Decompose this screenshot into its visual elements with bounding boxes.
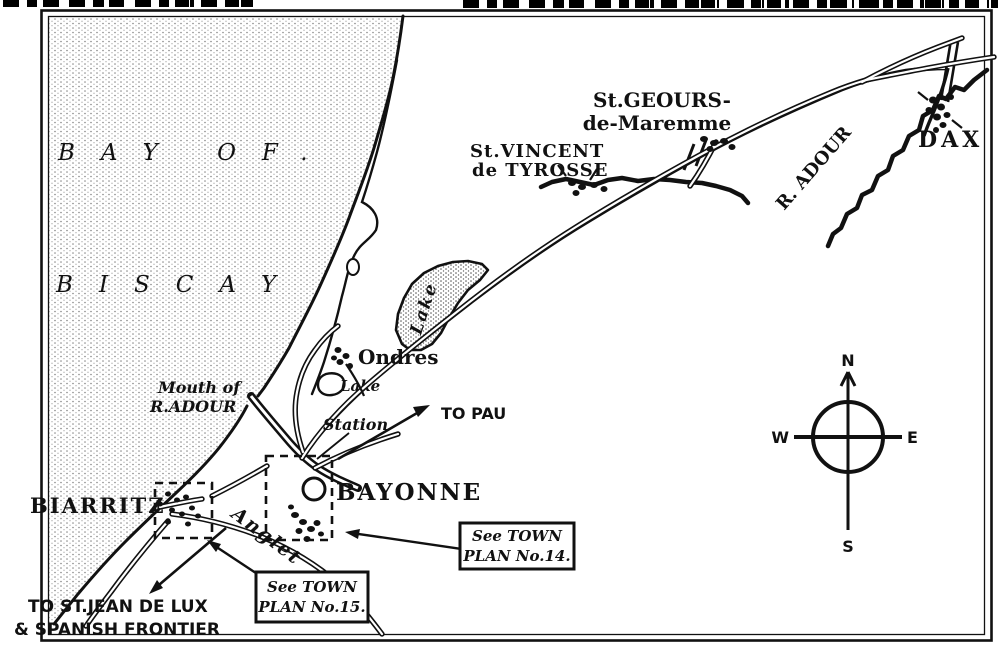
plan14-line1: See TOWN	[472, 527, 563, 545]
map-page: BAY OF. BISCAY R. ADOUR Mouth of R.ADOUR…	[0, 0, 1000, 659]
label-dax: DAX	[918, 127, 983, 153]
label-st-geours-line1: St.GEOURS-	[593, 88, 731, 112]
leader-plan15	[207, 540, 262, 577]
plan14-line2: PLAN No.14.	[462, 547, 570, 565]
compass-s: S	[842, 537, 854, 556]
plan15-line1: See TOWN	[267, 578, 358, 596]
label-st-geours-line2: de-Maremme	[583, 111, 731, 135]
river-adour-label: R. ADOUR	[772, 122, 856, 215]
small-pond-coast	[347, 259, 359, 275]
river-adour-dax: R. ADOUR	[772, 70, 987, 246]
plan-box-15: See TOWN PLAN No.15.	[256, 572, 368, 622]
label-biarritz: BIARRITZ	[30, 493, 166, 518]
label-bayonne: BAYONNE	[336, 479, 482, 506]
label-st-vincent-line1: St.VINCENT	[470, 141, 604, 162]
mouth-label-line1: Mouth of	[157, 378, 243, 397]
sea-label-line1: BAY OF.	[57, 140, 334, 166]
plan-box-14: See TOWN PLAN No.14.	[460, 523, 574, 569]
leader-plan14	[345, 529, 462, 549]
label-st-vincent-line2: de TYROSSE	[472, 160, 609, 181]
mouth-label-line2: R.ADOUR	[149, 397, 236, 416]
sea-label-line2: BISCAY	[55, 272, 302, 298]
lake-large: Lake	[396, 261, 488, 350]
compass-rose: N S W E	[771, 351, 918, 556]
arrow-to-st-jean	[149, 528, 226, 594]
label-to-st-jean-line1: TO ST.JEAN DE LUX	[28, 597, 208, 617]
town-bayonne-cluster	[288, 478, 325, 542]
label-ondres: Ondres	[358, 345, 438, 369]
compass-e: E	[907, 428, 918, 447]
compass-n: N	[841, 351, 854, 370]
road-main-ne	[302, 80, 866, 458]
map-canvas: BAY OF. BISCAY R. ADOUR Mouth of R.ADOUR…	[0, 0, 1000, 659]
rail-cross-dax	[941, 40, 958, 102]
label-to-st-jean-line2: & SPANISH FRONTIER	[14, 620, 220, 640]
label-station: Station	[323, 415, 388, 434]
compass-w: W	[771, 428, 789, 447]
plan15-line2: PLAN No.15.	[257, 598, 365, 616]
label-to-pau: TO PAU	[441, 404, 506, 423]
